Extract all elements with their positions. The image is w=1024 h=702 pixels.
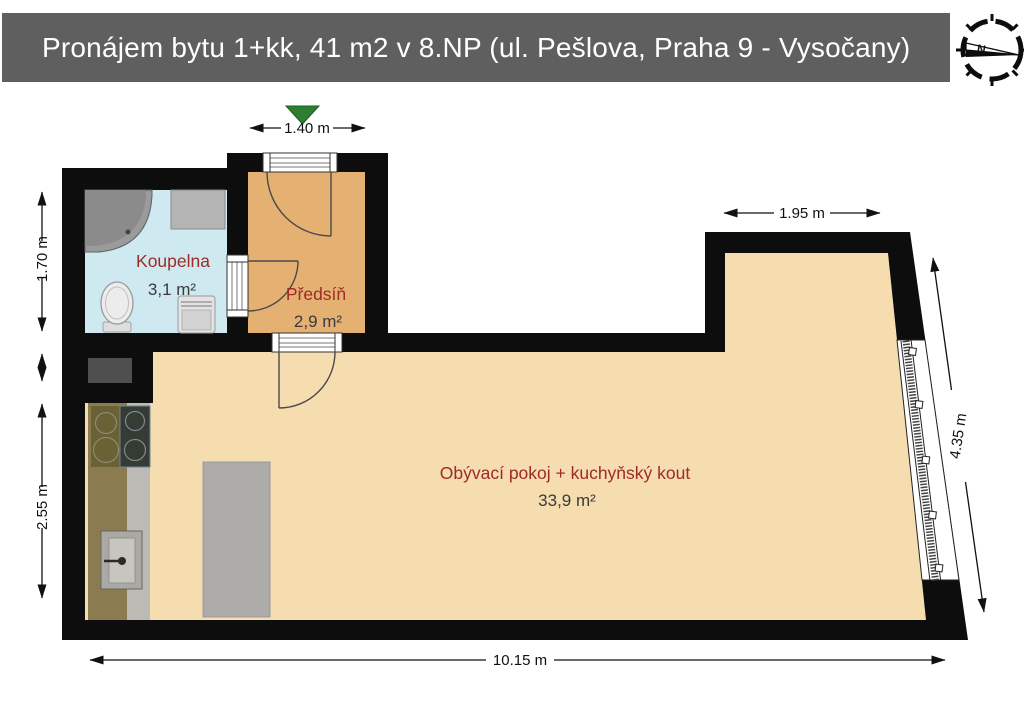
- shaft: [88, 358, 132, 383]
- dimension-total-width: 10.15 m: [90, 652, 945, 669]
- room-name: Koupelna: [136, 251, 210, 271]
- dimension-label: 1.95 m: [779, 205, 825, 222]
- room-area: 3,1 m²: [148, 280, 197, 299]
- dimension-label: 4.35 m: [947, 412, 971, 460]
- dimension-bathroom-height: 1.70 m: [34, 192, 51, 331]
- kitchen-sink-icon: [101, 531, 142, 589]
- dimension-label: 2.55 m: [34, 484, 51, 530]
- room-name: Obývací pokoj + kuchyňský kout: [440, 463, 691, 483]
- floor-plan-page: Pronájem bytu 1+kk, 41 m2 v 8.NP (ul. Pe…: [0, 0, 1024, 702]
- room-area: 33,9 m²: [538, 491, 596, 510]
- cooktop-icon: [91, 406, 150, 467]
- room-name: Předsíň: [286, 284, 346, 304]
- dimension-label: 1.40 m: [284, 120, 330, 137]
- room-predsin-floor: [248, 172, 365, 333]
- room-area: 2,9 m²: [294, 312, 343, 331]
- dimension-entry-width: 1.40 m: [250, 120, 365, 137]
- washer-icon: [178, 296, 215, 333]
- kitchen-island: [203, 462, 270, 617]
- dimension-label: 10.15 m: [493, 652, 547, 669]
- compass-icon: N: [956, 14, 1024, 86]
- dimension-label: 1.70 m: [34, 236, 51, 282]
- bathroom-counter-icon: [171, 190, 225, 229]
- dimension-top-right-width: 1.95 m: [724, 205, 880, 222]
- floor-plan: 1.40 m 1.95 m 1.70 m 2.55 m 10.15 m: [0, 0, 1024, 702]
- toilet-icon: [101, 282, 133, 332]
- dimension-kitchen-height: 2.55 m: [34, 404, 51, 598]
